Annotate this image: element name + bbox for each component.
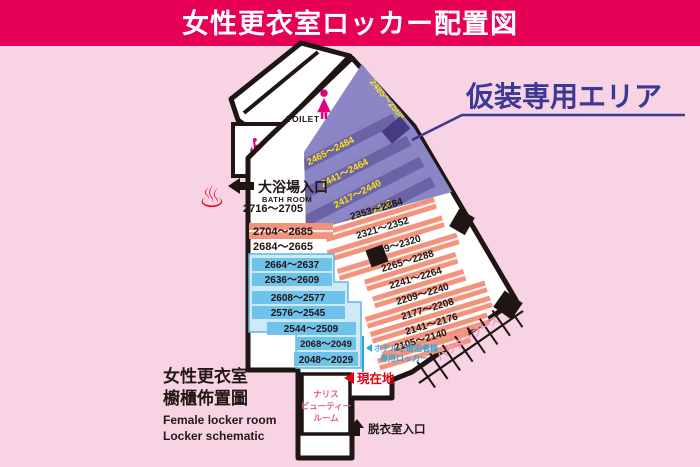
locker-row: 2608～2577 <box>252 291 345 304</box>
legend-title-en2: Locker schematic <box>163 429 265 443</box>
hot-spring-icon: ♨ <box>199 181 226 214</box>
locker-row: 2068～2049 <box>296 337 356 350</box>
beauty-room-label: ビューティー <box>301 401 352 411</box>
beauty-room-label: ルーム <box>313 413 339 423</box>
locker-row: 2704～2685 <box>249 223 333 239</box>
hotel-note-label: ホテルご宿泊者様 <box>374 343 439 353</box>
beauty-room: ナリス ビューティー ルーム <box>301 374 352 434</box>
locker-range-label: 2544～2509 <box>284 324 339 335</box>
locker-range-label: 2048～2029 <box>299 355 354 366</box>
locker-row: 2664～2637 <box>252 258 332 271</box>
locker-range-label: 2716～2705 <box>243 203 303 215</box>
toilet-label: TOILET <box>286 114 319 124</box>
legend-title-zh: 櫥櫃佈置圖 <box>163 388 248 408</box>
locker-range-label: 2636～2609 <box>265 275 320 286</box>
page-title: 女性更衣室ロッカー配置図 <box>182 8 518 39</box>
current-location-label: 現在地 <box>357 371 395 386</box>
locker-range-label: 2664～2637 <box>265 260 320 271</box>
undress-entrance-label: 脱衣室入口 <box>368 422 426 436</box>
bath-entrance-label-en: BATH ROOM <box>262 195 312 204</box>
locker-range-label: 2068～2049 <box>300 339 352 350</box>
locker-range-label: 2576～2545 <box>271 308 326 319</box>
locker-row: 2048～2029 <box>294 352 358 366</box>
legend-title-jp: 女性更衣室 <box>163 366 248 386</box>
locker-map: 女性更衣室ロッカー配置図 ♿ 2465～2484 2441～2464 2417～… <box>0 0 700 467</box>
locker-map-page: 女性更衣室ロッカー配置図 ♿ 2465～2484 2441～2464 2417～… <box>0 0 700 467</box>
locker-range-label: 2684～2665 <box>253 241 313 253</box>
hotel-note-label: 専用ロッカー <box>380 353 428 363</box>
costume-area-title: 仮装専用エリア <box>465 81 662 112</box>
locker-row: 2636～2609 <box>252 273 332 286</box>
beauty-room-label: ナリス <box>313 389 339 399</box>
locker-range-label: 2608～2577 <box>271 293 326 304</box>
locker-row: 2544～2509 <box>267 322 356 335</box>
legend-title-en1: Female locker room <box>163 413 276 427</box>
locker-range-label: 2704～2685 <box>253 226 313 238</box>
locker-row: 2576～2545 <box>252 306 345 319</box>
bath-entrance-label: 大浴場入口 <box>258 179 328 195</box>
